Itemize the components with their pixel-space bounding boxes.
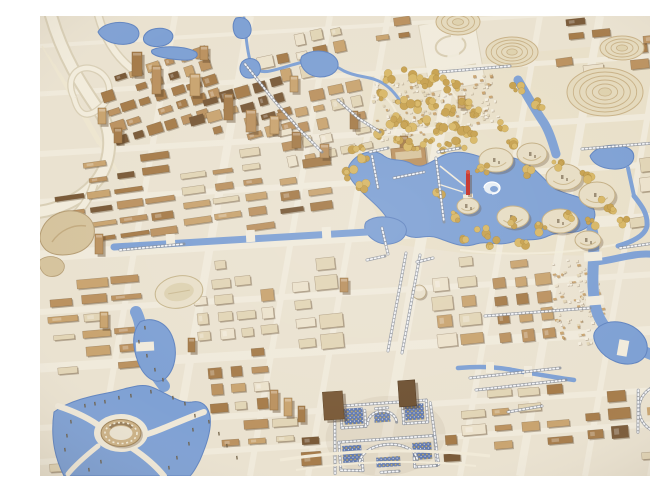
- city-model-photo: [40, 16, 650, 476]
- vignette: [40, 16, 650, 476]
- city-model-scene: [40, 16, 650, 476]
